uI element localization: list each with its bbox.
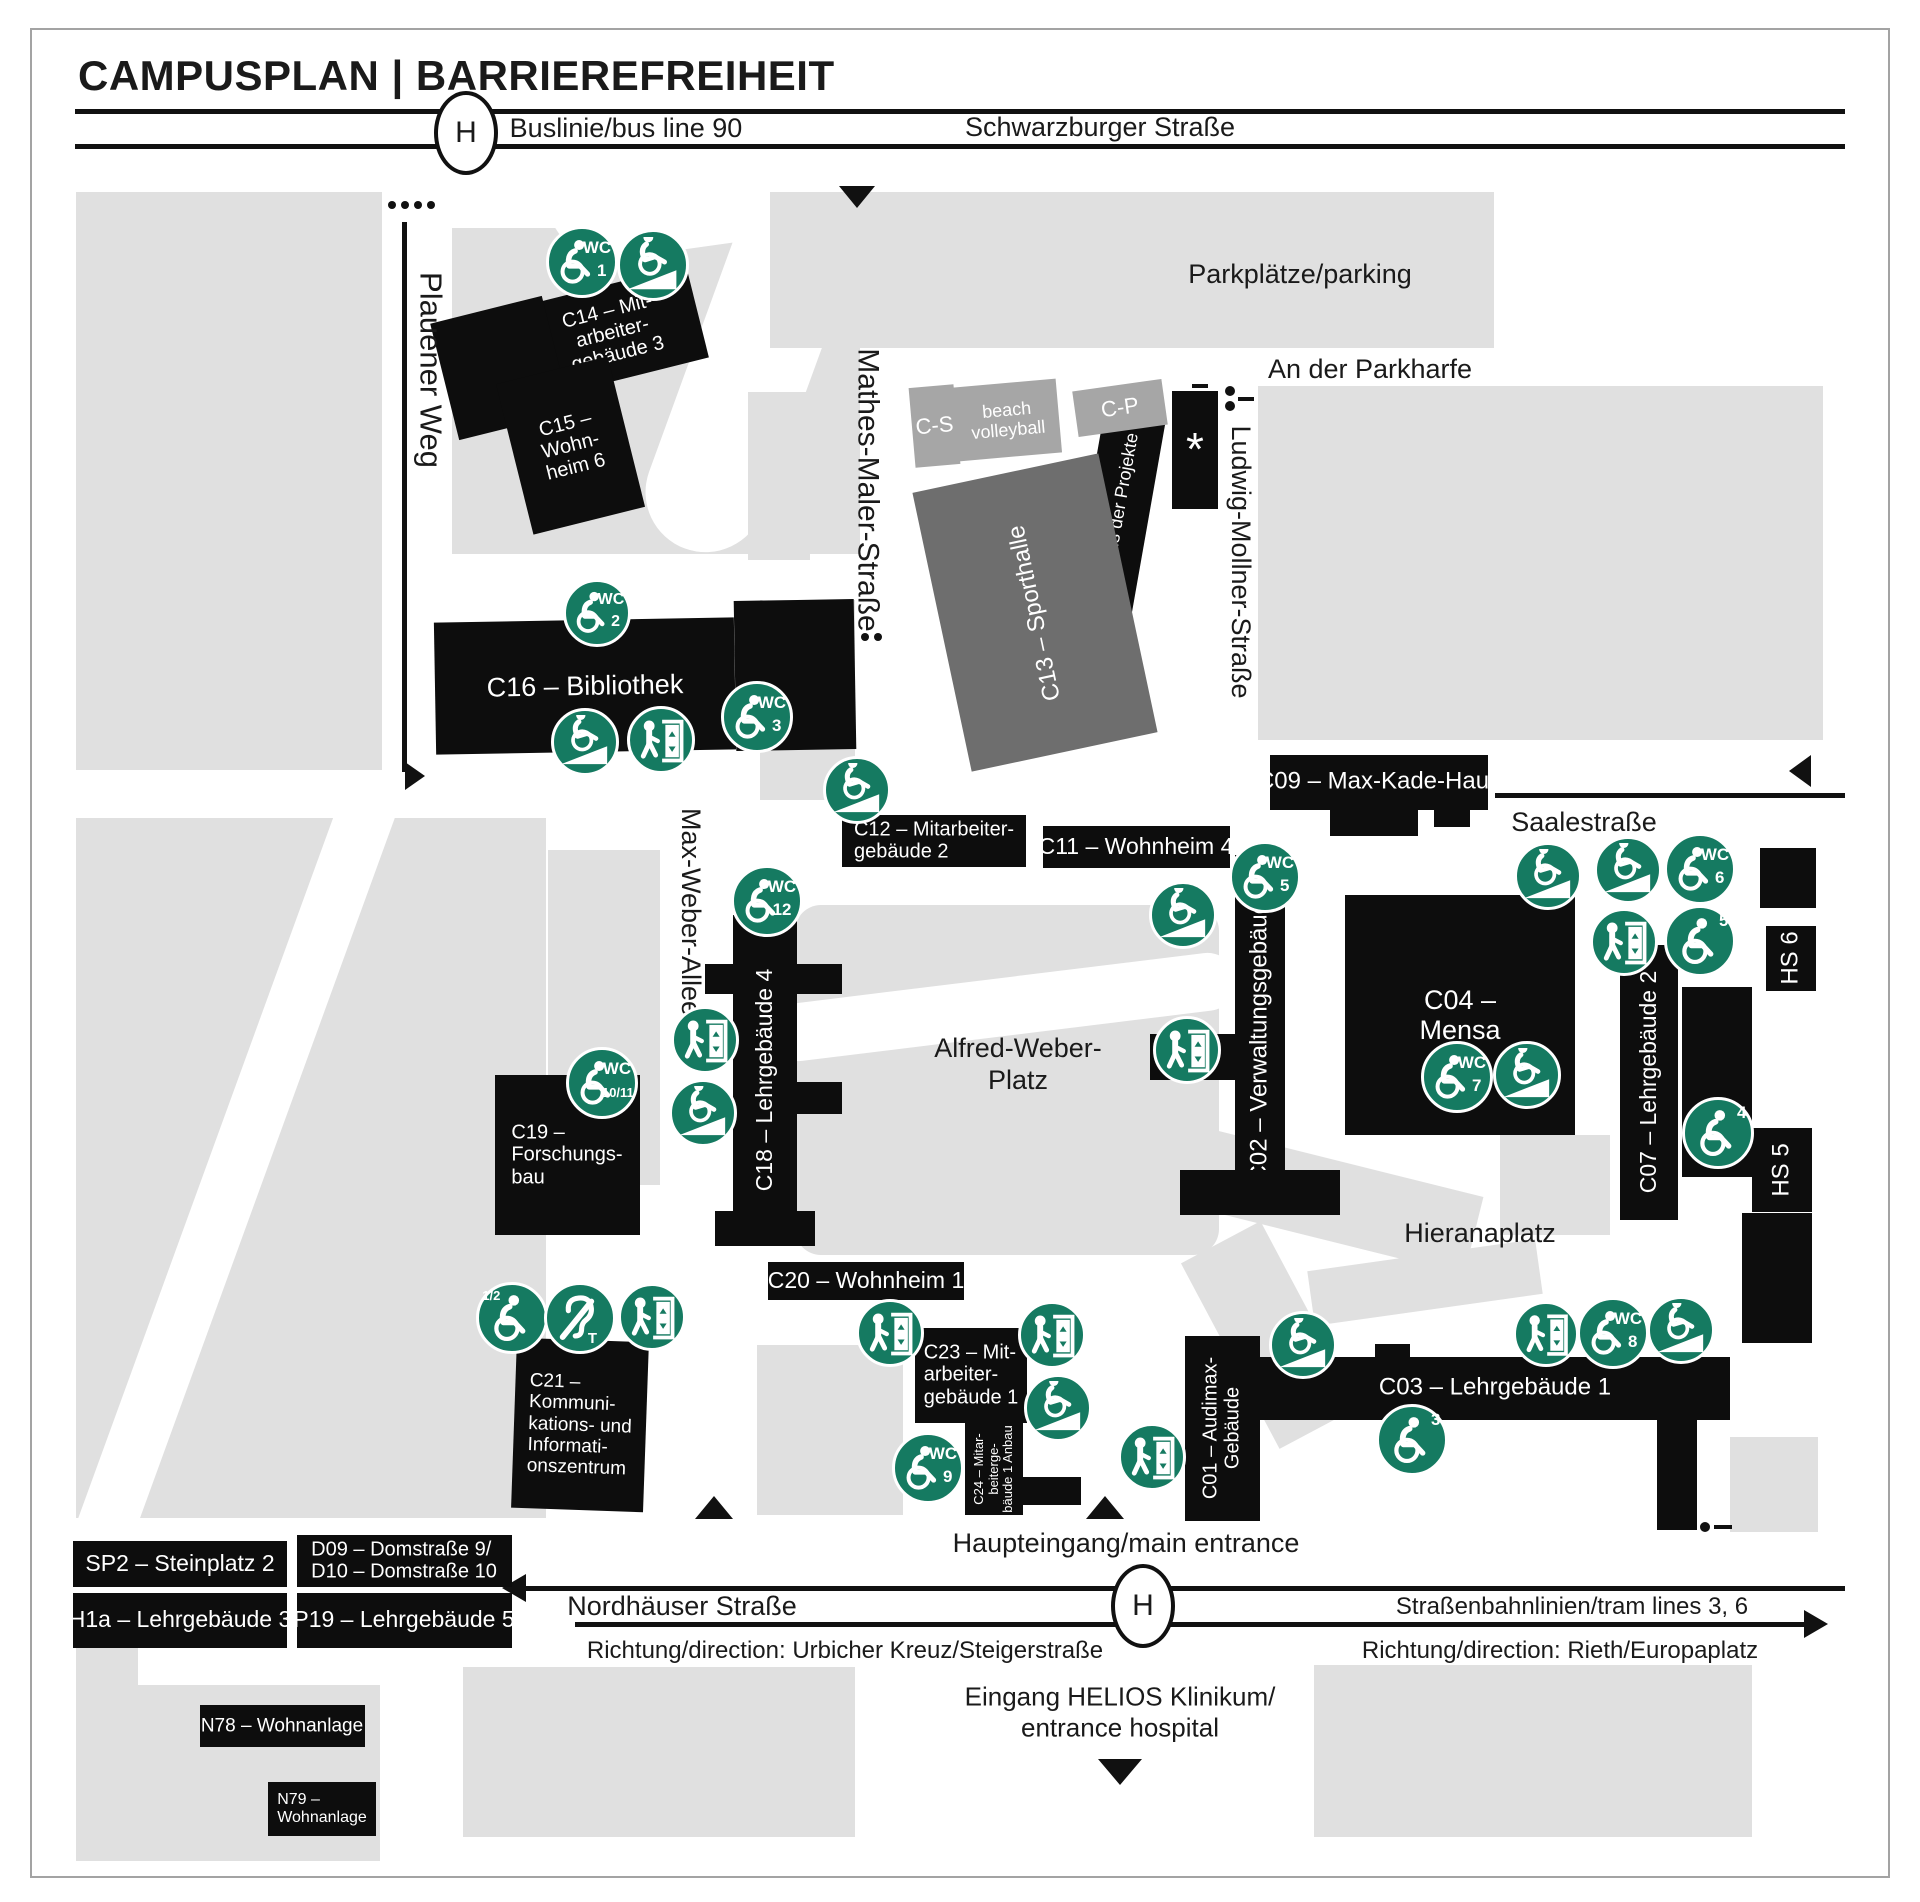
wc-text: WC [583, 240, 611, 257]
area-block-s1 [76, 1647, 138, 1861]
map-dot [861, 633, 869, 641]
building-label: P19 – Lehrgebäude 5 [293, 1607, 514, 1633]
building-label: C03 – Lehrgebäude 1 [1379, 1375, 1611, 1402]
marker-wc-12: WC12 [731, 865, 803, 937]
wheelchair-icon [1380, 1415, 1433, 1468]
building-c03: C03 – Lehrgebäude 1 [1260, 1357, 1730, 1420]
building-c12: C12 – Mitarbeiter-gebäude 2 [842, 815, 1026, 867]
street-line [402, 222, 407, 772]
building-label: C-S [914, 412, 954, 440]
building-label: HS 5 [1769, 1143, 1796, 1196]
ramp-icon [557, 715, 611, 769]
marker-wc-3: WC3 [721, 681, 793, 753]
marker-wc-2: WC2 [563, 579, 631, 647]
marker-ear [544, 1282, 616, 1354]
building-label: C23 – Mit-arbeiter-gebäude 1 [924, 1341, 1019, 1408]
building-hs6 [1760, 848, 1816, 908]
ramp-icon [1030, 1381, 1084, 1435]
marker-number: 12 [773, 902, 792, 919]
marker-ramp [669, 1079, 737, 1147]
marker-wheel-3: 3 [1376, 1404, 1448, 1476]
wc-text: WC [929, 1446, 957, 1463]
building-label: SP2 – Steinplatz 2 [85, 1551, 274, 1577]
building-c03 [1657, 1420, 1697, 1530]
street-mathes-maler: Mathes-Maler-Straße [850, 348, 885, 631]
marker-wheel-5: 5 [1664, 905, 1736, 977]
building-c18 [705, 964, 733, 994]
marker-number: 1 [597, 263, 606, 280]
elevator-icon [677, 1013, 731, 1067]
building-n78: N78 – Wohnanlage [200, 1705, 365, 1747]
building-c24 [1023, 1477, 1081, 1505]
street-nordhaeuser: Nordhäuser Straße [567, 1591, 797, 1623]
elevator-icon [633, 713, 687, 767]
building-c24: C24 – Mitar-beiterge-bäude 1 Anbau [965, 1423, 1023, 1515]
building-label: C04 –Mensa [1419, 985, 1500, 1045]
map-dot [427, 201, 435, 209]
marker-number: 8 [1628, 1334, 1637, 1351]
building-c18 [797, 964, 842, 994]
building-hs5: HS 5 [1752, 1128, 1812, 1212]
building-c21: C21 –Kommuni-kations- undInformati-onsze… [511, 1338, 649, 1513]
building-label: C07 – Lehrgebäude 2 [1636, 971, 1662, 1194]
street-line [75, 144, 1845, 149]
map-dot [401, 201, 409, 209]
building-c18 [715, 1211, 815, 1246]
building-beach-volleyball: beachvolleyball [952, 379, 1061, 462]
marker-ramp [551, 708, 619, 776]
marker-lift [1590, 908, 1658, 976]
marker-ramp [1024, 1374, 1092, 1442]
wheelchair-icon [1668, 916, 1721, 969]
marker-lift [618, 1283, 686, 1351]
bus-line-label: Buslinie/bus line 90 [510, 113, 743, 145]
tram-lines-label: Straßenbahnlinien/tram lines 3, 6 [1396, 1593, 1748, 1621]
elevator-icon [1024, 1308, 1078, 1362]
building-label: C02 – Verwaltungsgebäude [1247, 888, 1274, 1183]
area-block-s5 [1730, 1437, 1818, 1532]
ramp-icon [1155, 888, 1209, 942]
marker-ramp [1149, 881, 1217, 949]
elevator-icon [1159, 1023, 1213, 1077]
building-c02 [1180, 1170, 1340, 1215]
wc-text: WC [1701, 847, 1729, 864]
building-label: C15 –Wohn-heim 6 [533, 405, 607, 485]
street-max-weber-allee: Max-Weber-Allee [674, 808, 706, 1016]
building-label: C09 – Max-Kade-Haus [1257, 769, 1501, 796]
building-c11: C11 – Wohnheim 4 [1043, 826, 1230, 868]
wc-text: WC [768, 879, 796, 896]
wc-text: WC [758, 695, 786, 712]
marker-lift [1513, 1301, 1579, 1367]
building-hs5 [1742, 1213, 1812, 1343]
building-label: HS 6 [1778, 931, 1805, 984]
wc-text: WC [1614, 1311, 1642, 1328]
arrow-left-icon [1789, 755, 1811, 787]
building-c23: C23 – Mit-arbeiter-gebäude 1 [915, 1328, 1027, 1423]
map-dash [1238, 397, 1254, 401]
marker-wc-6: WC6 [1664, 833, 1736, 905]
map-dash [1192, 384, 1208, 388]
marker-lift [856, 1299, 924, 1367]
building-label: N79 –Wohnanlage [277, 1791, 367, 1827]
marker-lift [627, 706, 695, 774]
marker-wc-10-11: WC10/11 [566, 1047, 638, 1119]
marker-ramp [617, 229, 689, 301]
map-dot [1700, 1522, 1710, 1532]
marker-wc-1: WC1 [546, 226, 618, 298]
building-c20: C20 – Wohnheim 1 [768, 1262, 964, 1300]
marker-wheel-1-2: 1/2 [476, 1282, 548, 1354]
building-label: C20 – Wohnheim 1 [768, 1268, 964, 1294]
marker-ramp [1514, 842, 1582, 910]
map-dot [1225, 386, 1235, 396]
marker-number: 5 [1719, 913, 1728, 930]
marker-wc-7: WC7 [1421, 1041, 1493, 1113]
marker-number: 7 [1472, 1078, 1481, 1095]
ramp-icon [1653, 1303, 1707, 1357]
ramp-icon [829, 763, 883, 817]
marker-wc-9: WC9 [892, 1432, 964, 1504]
elevator-icon [624, 1290, 678, 1344]
marker-ramp [1594, 836, 1662, 904]
area-block-s4 [1314, 1665, 1752, 1837]
building-label: C21 –Kommuni-kations- undInformati-onsze… [526, 1370, 633, 1480]
bus-stop-sign: H [434, 91, 498, 175]
building-label: * [1186, 424, 1204, 476]
marker-wc-8: WC8 [1577, 1297, 1649, 1369]
building-label: D09 – Domstraße 9/D10 – Domstraße 10 [311, 1539, 497, 1584]
direction-label-east: Richtung/direction: Rieth/Europaplatz [1362, 1637, 1758, 1665]
area-block-ne [1258, 386, 1823, 740]
building-label: C11 – Wohnheim 4 [1039, 834, 1234, 860]
marker-number: 3 [772, 718, 781, 735]
building-label: C12 – Mitarbeiter-gebäude 2 [854, 819, 1014, 864]
marker-number: 9 [943, 1469, 952, 1486]
wc-text: WC [1458, 1055, 1486, 1072]
building-label: C14 – Mit-arbeiter-gebäude 3 [558, 288, 666, 376]
building-label: C-P [1100, 393, 1141, 423]
arrow-up-icon [695, 1496, 733, 1519]
map-dot [874, 633, 882, 641]
ramp-icon [1520, 849, 1574, 903]
map-dot [414, 201, 422, 209]
building-n79: N79 –Wohnanlage [268, 1782, 376, 1836]
building-label: N78 – Wohnanlage [201, 1715, 363, 1736]
marker-ramp [1269, 1311, 1337, 1379]
marker-ramp [1647, 1296, 1715, 1364]
wheelchair-icon [1686, 1108, 1739, 1161]
building-c-s: C-S [908, 384, 960, 468]
ramp-icon [675, 1086, 729, 1140]
marker-ramp [823, 756, 891, 824]
arrow-up-icon [1086, 1496, 1124, 1519]
hearing-loop-icon [550, 1290, 607, 1347]
street-schwarzburger: Schwarzburger Straße [965, 112, 1235, 144]
building-sp2: SP2 – Steinplatz 2 [73, 1541, 287, 1587]
hospital-entrance-label: Eingang HELIOS Klinikum/entrance hospita… [965, 1681, 1276, 1742]
building-c09 [1434, 807, 1470, 827]
building-c09: C09 – Max-Kade-Haus [1270, 755, 1488, 810]
marker-lift [671, 1006, 739, 1074]
main-entrance-label: Haupteingang/main entrance [953, 1528, 1300, 1560]
building-label: C19 –Forschungs-bau [511, 1121, 622, 1188]
ramp-icon [1499, 1048, 1553, 1102]
building-d09-d10: D09 – Domstraße 9/D10 – Domstraße 10 [297, 1535, 512, 1587]
building-label: C01 – Audimax-Gebäude [1200, 1357, 1245, 1499]
wc-text: WC [1266, 855, 1294, 872]
street-saalestrasse: Saalestraße [1511, 807, 1657, 839]
elevator-icon [862, 1306, 916, 1360]
street-line [518, 1586, 1845, 1591]
building-c03 [1375, 1344, 1410, 1358]
direction-label-west: Richtung/direction: Urbicher Kreuz/Steig… [587, 1637, 1103, 1665]
building-c18 [797, 1082, 842, 1114]
street-an-der-parkharfe: An der Parkharfe [1268, 354, 1472, 386]
map-dash [1714, 1525, 1732, 1529]
area-block-nw [76, 192, 382, 770]
building-label: C16 – Bibliothek [486, 669, 683, 703]
elevator-icon [1596, 915, 1650, 969]
street-plauener-weg: Plauener Weg [412, 272, 449, 468]
map-dot [388, 201, 396, 209]
marker-number: 5 [1280, 878, 1289, 895]
wc-text: WC [603, 1061, 631, 1078]
marker-lift [1153, 1016, 1221, 1084]
marker-number: 2 [611, 614, 620, 630]
building-c09 [1330, 808, 1418, 836]
building-label: C13 – Sporthalle [1003, 522, 1066, 702]
parking-label: Parkplätze/parking [1188, 259, 1412, 291]
map-dot [1225, 401, 1235, 411]
marker-lift [1118, 1423, 1186, 1491]
building-label: C18 – Lehrgebäude 4 [752, 969, 778, 1192]
marker-wheel-4: 4 [1682, 1097, 1754, 1169]
building-label: H1a – Lehrgebäude 3 [69, 1607, 292, 1633]
marker-number: 4 [1737, 1105, 1746, 1122]
building-hs6: HS 6 [1766, 926, 1816, 991]
hieranaplatz-label: Hieranaplatz [1404, 1218, 1556, 1250]
marker-ramp [1493, 1041, 1561, 1109]
wc-text: WC [598, 592, 625, 608]
arrow-right-icon [405, 762, 425, 790]
arrow-right-icon [1804, 1610, 1828, 1638]
marker-wc-5: WC5 [1229, 841, 1301, 913]
building-c18: C18 – Lehrgebäude 4 [733, 915, 797, 1245]
page-title: CAMPUSPLAN | BARRIEREFREIHEIT [78, 52, 835, 100]
marker-number: 1/2 [482, 1290, 500, 1303]
street-line [1495, 793, 1845, 798]
elevator-icon [1124, 1430, 1178, 1484]
arrow-down-icon [1098, 1759, 1142, 1785]
building-p19: P19 – Lehrgebäude 5 [297, 1593, 512, 1648]
alfred-weber-platz-label: Alfred-Weber-Platz [934, 1033, 1102, 1097]
ramp-icon [1600, 843, 1654, 897]
area-block-s3 [463, 1667, 855, 1837]
marker-number: 3 [1431, 1412, 1440, 1429]
marker-number: 10/11 [602, 1087, 634, 1100]
area-strip [748, 392, 810, 560]
building-h1a: H1a – Lehrgebäude 3 [73, 1593, 287, 1648]
elevator-icon [1519, 1308, 1571, 1360]
building-star-building: * [1172, 391, 1218, 509]
bus-stop-sign: H [1111, 1564, 1175, 1648]
marker-lift [1018, 1301, 1086, 1369]
building-c07: C07 – Lehrgebäude 2 [1620, 945, 1678, 1220]
area-below-c20 [757, 1345, 903, 1515]
arrow-down-icon [839, 186, 875, 208]
marker-number: 6 [1715, 870, 1724, 887]
building-label: beachvolleyball [968, 397, 1045, 444]
ramp-icon [1275, 1318, 1329, 1372]
street-line [75, 109, 1845, 114]
street-ludwig-mollner: Ludwig-Mollner-Straße [1224, 425, 1256, 698]
map-canvas: HHC14 – Mit-arbeiter-gebäude 3C15 –Wohn-… [0, 0, 1920, 1902]
building-label: C24 – Mitar-beiterge-bäude 1 Anbau [972, 1425, 1016, 1512]
ramp-icon [623, 237, 680, 294]
building-c01: C01 – Audimax-Gebäude [1185, 1336, 1260, 1521]
